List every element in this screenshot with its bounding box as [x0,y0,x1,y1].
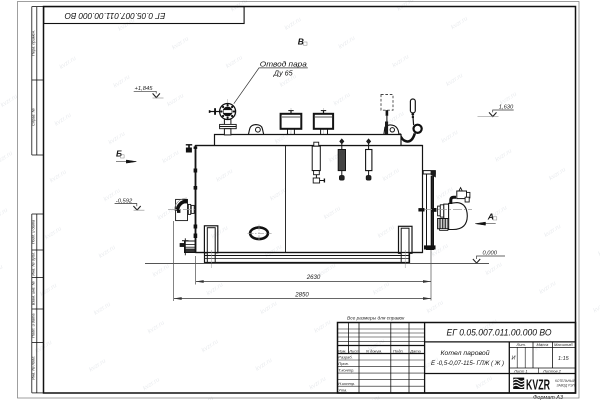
svg-text:ЗАВОД РЭП: ЗАВОД РЭП [557,384,576,388]
svg-text:Формат А3: Формат А3 [533,395,564,400]
svg-text:В: В [298,37,304,47]
svg-text:1:15: 1:15 [558,356,570,362]
svg-text:ЕГ 0.05.007.011.00.000 ВО: ЕГ 0.05.007.011.00.000 ВО [64,11,165,20]
svg-text:ЕГ 0.05.007.011.00.000 ВО: ЕГ 0.05.007.011.00.000 ВО [447,328,552,338]
svg-text:2850: 2850 [294,292,309,299]
svg-text:Б: Б [116,149,122,159]
svg-text:KVZR: KVZR [526,377,550,393]
svg-text:Лит.: Лит. [516,342,526,347]
svg-text:Пров.: Пров. [338,361,349,366]
svg-text:Перв. примен.: Перв. примен. [31,30,36,56]
svg-text:Изм.: Изм. [338,348,347,353]
svg-text:И: И [512,356,516,362]
svg-text:Дата: Дата [409,348,421,353]
svg-text:Справ. №: Справ. № [31,107,36,125]
svg-text:Утв.: Утв. [338,387,347,392]
svg-text:Масштаб: Масштаб [554,342,573,347]
svg-text:Т.контр.: Т.контр. [338,368,354,373]
svg-text:Подп. и дата: Подп. и дата [31,219,36,244]
svg-text:Подп. и дата: Подп. и дата [31,313,36,338]
svg-text:Все размеры для справок: Все размеры для справок [347,316,405,322]
svg-text:Разраб.: Разраб. [338,355,352,360]
svg-text:Взам. инв. №: Взам. инв. № [31,280,36,305]
svg-text:2630: 2630 [306,274,321,281]
svg-text:0,000: 0,000 [482,250,497,256]
svg-text:Инв. № подл.: Инв. № подл. [31,356,36,380]
svg-text:КОТЕЛЬНЫЙ: КОТЕЛЬНЫЙ [555,379,576,383]
svg-text:Инв. № дубл.: Инв. № дубл. [31,252,36,276]
svg-text:Листов 2: Листов 2 [542,368,562,373]
svg-text:Котел паровой: Котел паровой [441,350,491,357]
svg-text:Н.контр.: Н.контр. [338,381,355,386]
svg-text:Подп.: Подп. [393,348,404,353]
svg-text:Е -0,5-0,07-115- ГЛЖ ( Ж ): Е -0,5-0,07-115- ГЛЖ ( Ж ) [431,360,504,367]
svg-text:Лист: Лист [348,348,360,353]
svg-text:Лист 1: Лист 1 [513,368,528,373]
svg-text:Отвод пара: Отвод пара [260,60,307,69]
